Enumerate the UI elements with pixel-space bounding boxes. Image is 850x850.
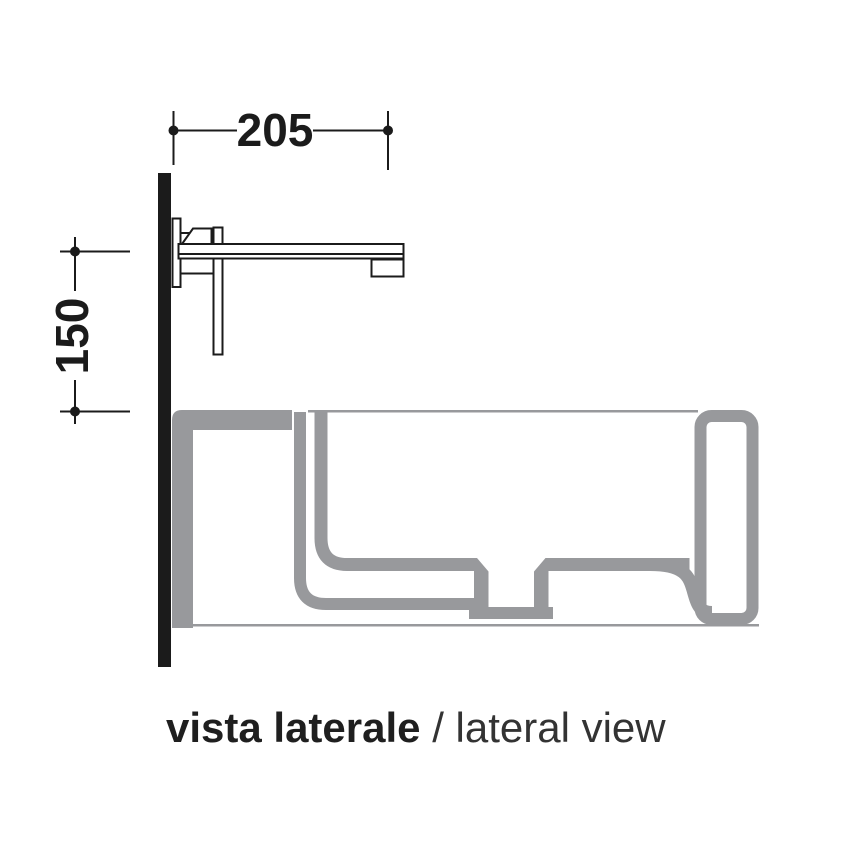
caption-separator: / [432, 704, 455, 751]
basin-section [172, 410, 759, 628]
drain-bottom [469, 607, 553, 619]
wall-bar [158, 173, 171, 667]
dim-left-dot-top [70, 247, 80, 257]
caption-text: vista laterale / lateral view [166, 704, 666, 751]
dimension-top: 205 [169, 104, 394, 170]
basin-right-wall [701, 416, 753, 619]
basin-left-wall [172, 410, 292, 628]
faucet-spout-lip [179, 254, 404, 259]
dim-top-value: 205 [237, 104, 314, 156]
dim-top-dot-left [169, 126, 179, 136]
faucet-spout [179, 244, 404, 254]
basin-bottom-line [193, 624, 759, 627]
wall [158, 173, 171, 667]
technical-drawing: 205 150 vista laterale / lateral view [0, 0, 850, 850]
faucet [173, 219, 404, 355]
dimension-left: 150 [46, 237, 130, 424]
caption-english: lateral view [456, 704, 667, 751]
dim-top-dot-right [383, 126, 393, 136]
drain-right-wall [534, 558, 549, 613]
caption: vista laterale / lateral view [166, 704, 666, 751]
faucet-handle-base [182, 229, 212, 245]
basin-inner-bowl [321, 411, 474, 565]
faucet-outlet [372, 260, 404, 277]
dim-left-dot-bottom [70, 407, 80, 417]
dim-left-value: 150 [46, 298, 98, 375]
basin-rim-line [308, 410, 698, 413]
caption-italian: vista laterale [166, 704, 421, 751]
drawing-canvas: 205 150 vista laterale / lateral view [0, 0, 850, 850]
drain-left-wall [474, 558, 489, 613]
